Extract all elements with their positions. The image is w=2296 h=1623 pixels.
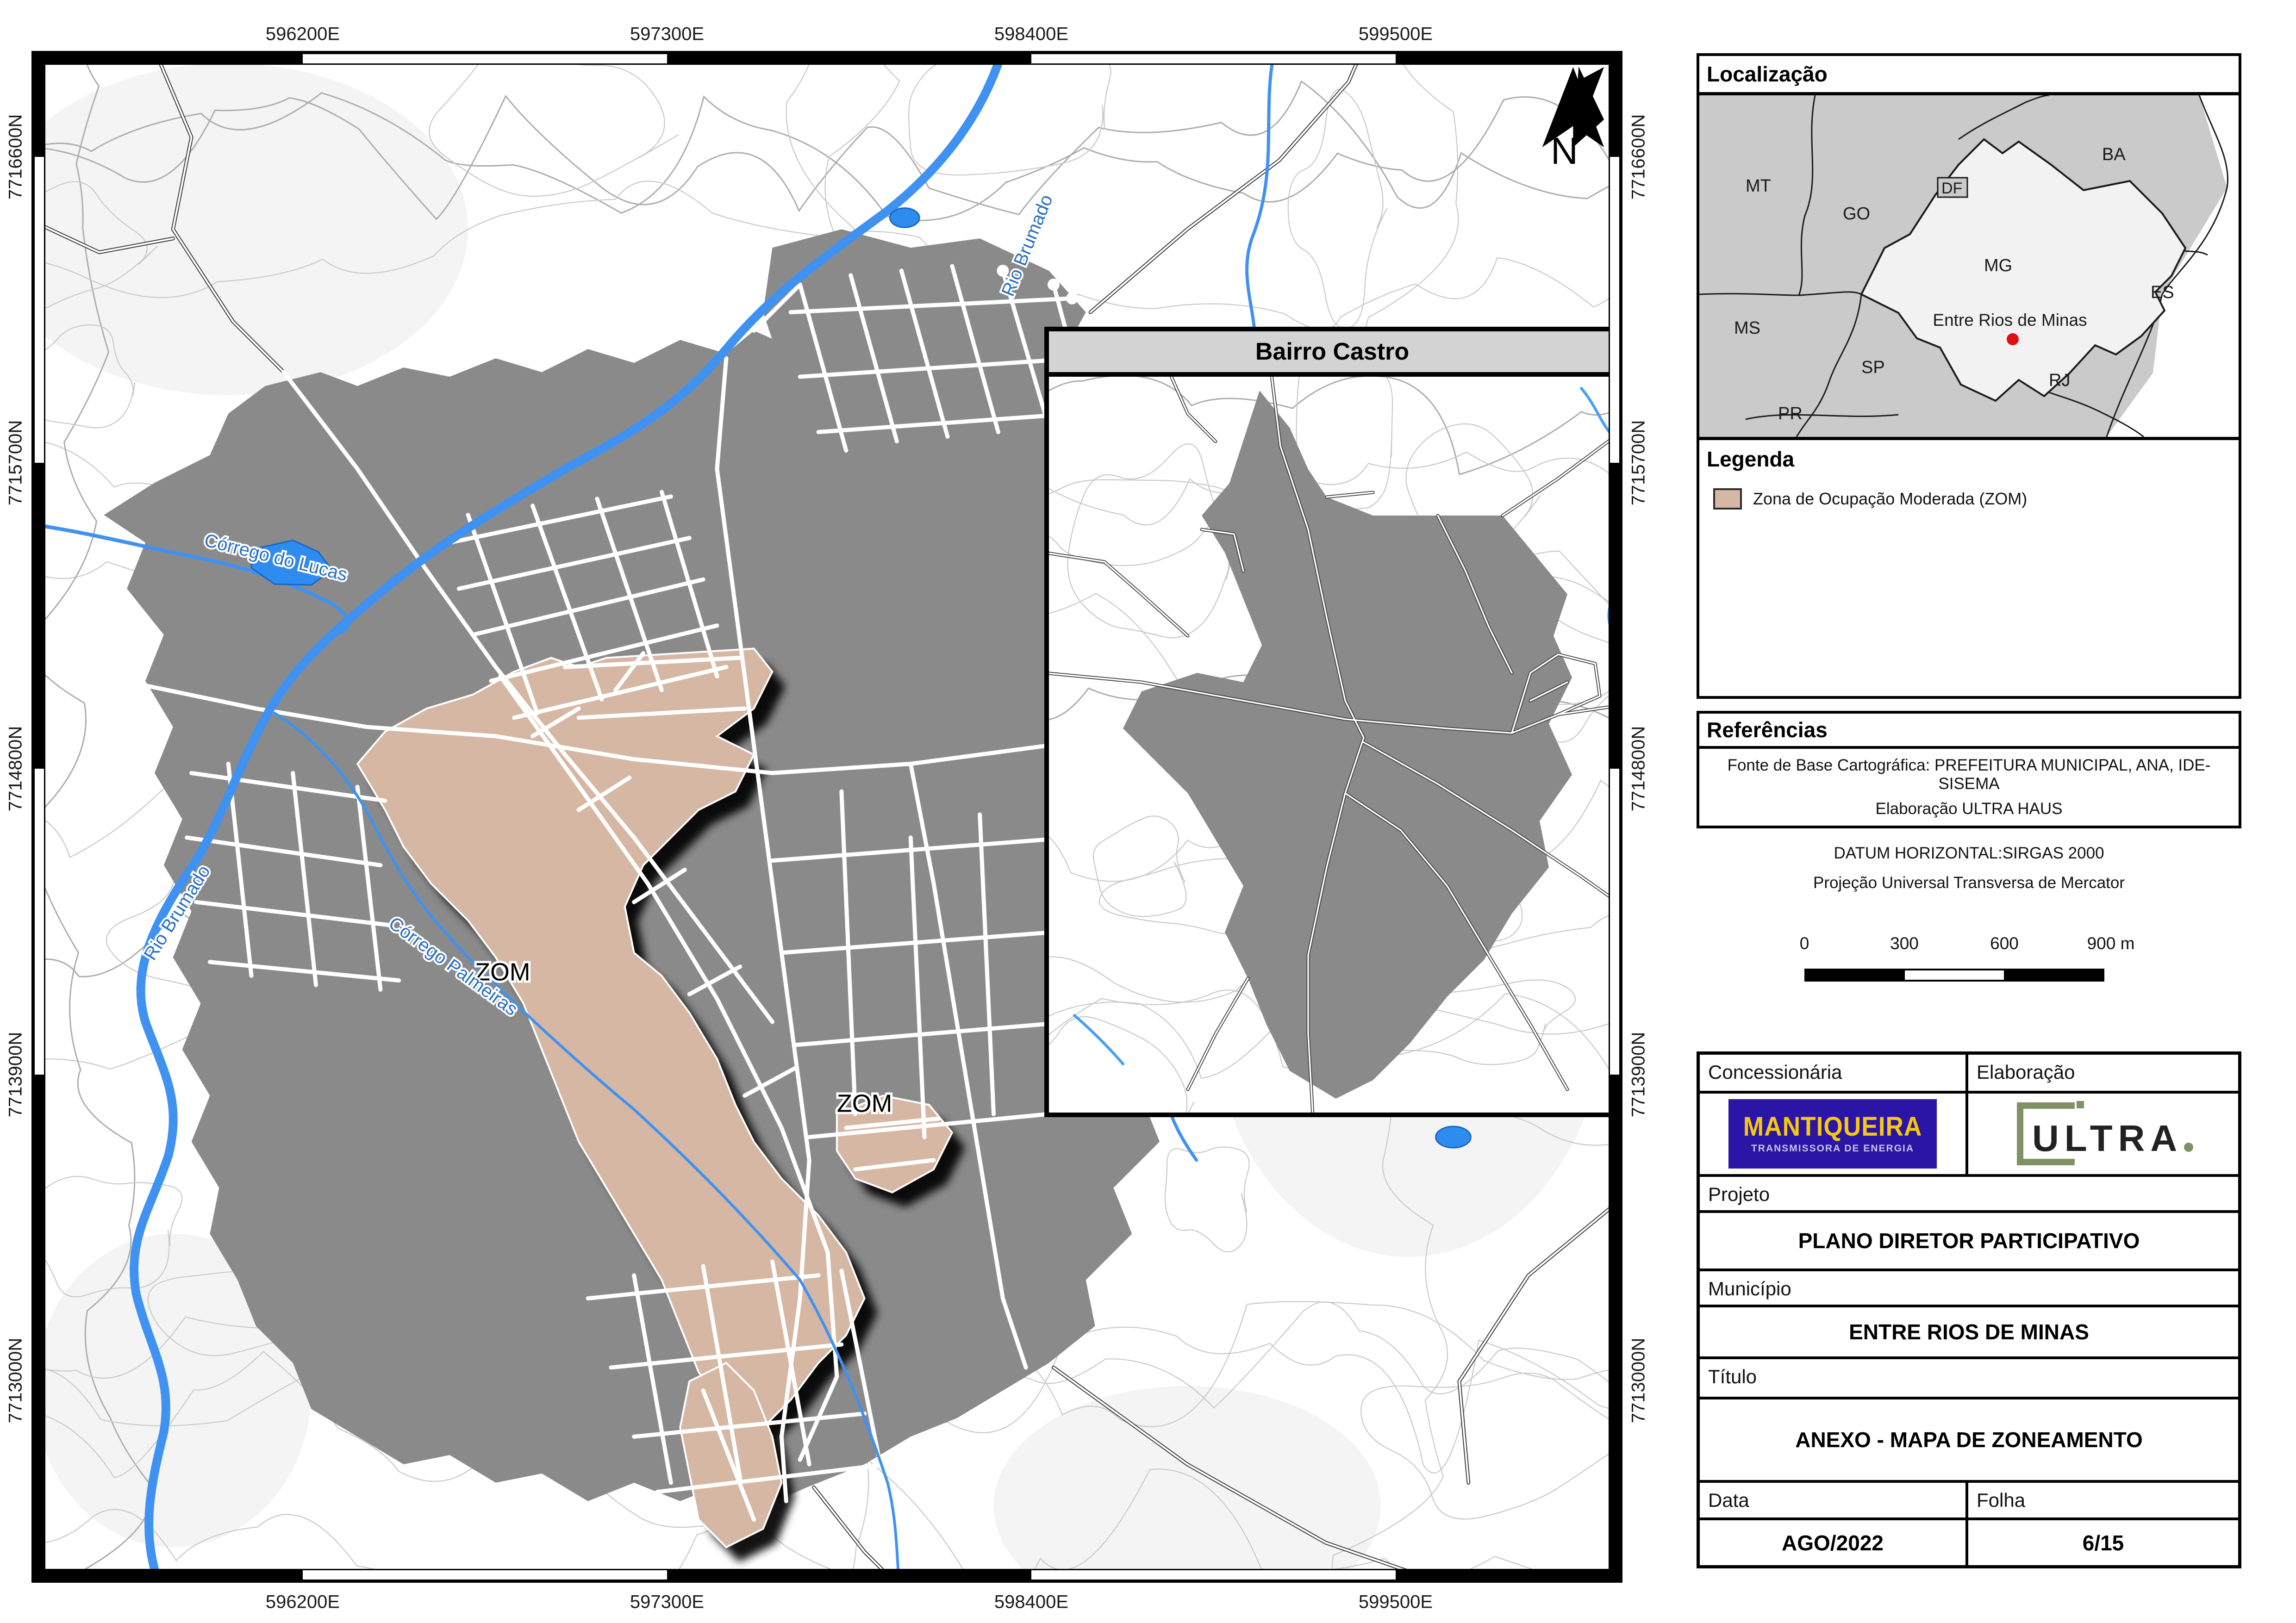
state-locator-map: MT GO DF BA MG ES MS SP PR RJ Entre Rios…: [1699, 95, 2239, 437]
inset-map-bairro-castro: Bairro Castro: [1044, 327, 1620, 1117]
neatline-left: [35, 54, 45, 1579]
grid-label-right-1: 7716600N: [1628, 114, 1649, 200]
grid-label-left-5: 7713000N: [6, 1338, 26, 1424]
grid-label-bottom-1: 596200E: [266, 1592, 340, 1613]
ultra-logo-dot: [2184, 1143, 2193, 1152]
grid-label-top-1: 596200E: [266, 24, 340, 45]
neatline-bottom: [35, 1569, 1619, 1579]
grid-label-left-4: 7713900N: [6, 1032, 26, 1118]
neatline-top: [35, 54, 1619, 65]
references-body: Fonte de Base Cartográfica: PREFEITURA M…: [1699, 749, 2239, 826]
scale-bar-segment-3: [2004, 970, 2103, 980]
elaboracao-label: Elaboração: [1968, 1055, 2238, 1083]
scalebar-tick-600: 600: [1990, 934, 2019, 953]
row-titulo-label: Título: [1700, 1356, 2238, 1397]
grid-label-top-3: 598400E: [994, 24, 1068, 45]
localizacao-panel: Localização MT GO DF BA MG ES MS SP PR R…: [1697, 53, 2241, 437]
municipality-marker: [2007, 333, 2019, 345]
folha-value: 6/15: [1968, 1520, 2238, 1565]
grid-label-bottom-3: 598400E: [994, 1592, 1068, 1613]
data-label: Data: [1700, 1483, 1965, 1511]
zom-swatch: [1713, 488, 1742, 510]
row-municipio-value: ENTRE RIOS DE MINAS: [1700, 1305, 2238, 1356]
scale-bar-segment-1: [1806, 970, 1905, 980]
references-title: Referências: [1699, 717, 1828, 742]
legend-item-zom: Zona de Ocupação Moderada (ZOM): [1713, 488, 2239, 510]
grid-label-bottom-2: 597300E: [630, 1592, 704, 1613]
grid-label-bottom-4: 599500E: [1359, 1592, 1433, 1613]
state-label-sp: SP: [1861, 358, 1885, 377]
mantiqueira-logo-text: MANTIQUEIRA: [1743, 1113, 1922, 1140]
concessionaria-label: Concessionária: [1700, 1055, 1965, 1083]
folha-label: Folha: [1968, 1483, 2238, 1511]
state-label-es: ES: [2151, 283, 2174, 302]
ultra-logo: ULTRA: [2006, 1099, 2201, 1169]
grid-label-right-5: 7713000N: [1628, 1338, 1649, 1424]
projeto-label: Projeto: [1700, 1177, 2238, 1206]
scalebar-tick-0: 0: [1800, 934, 1809, 953]
row-municipio-label: Município: [1700, 1269, 2238, 1305]
mantiqueira-logo: MANTIQUEIRA TRANSMISSORA DE ENERGIA: [1728, 1099, 1937, 1169]
row-concessionaria-elaboracao: Concessionária Elaboração: [1700, 1055, 2238, 1091]
zoning-map-sheet: { "map": { "grid_e": ["596200E", "597300…: [0, 0, 2296, 1623]
mantiqueira-logo-subtext: TRANSMISSORA DE ENERGIA: [1751, 1143, 1914, 1154]
inset-title-bar: Bairro Castro: [1049, 331, 1616, 377]
marker-label: Entre Rios de Minas: [1933, 311, 2087, 330]
localizacao-header: Localização: [1699, 56, 2239, 95]
scale-bar-segment-2: [1905, 970, 2003, 980]
neatline-right: [1609, 54, 1619, 1579]
inset-canvas: [1049, 377, 1616, 1113]
scale-bar: [1804, 969, 2104, 982]
scalebar-tick-300: 300: [1890, 934, 1919, 953]
zom-swatch-label: Zona de Ocupação Moderada (ZOM): [1753, 489, 2027, 509]
legend-panel: Legenda Zona de Ocupação Moderada (ZOM): [1697, 437, 2241, 699]
row-logos: MANTIQUEIRA TRANSMISSORA DE ENERGIA ULTR…: [1700, 1091, 2238, 1174]
municipio-value: ENTRE RIOS DE MINAS: [1700, 1307, 2238, 1356]
municipio-label: Município: [1700, 1271, 2238, 1300]
state-label-ms: MS: [1734, 318, 1760, 338]
legend-title: Legenda: [1699, 440, 2239, 476]
projeto-value: PLANO DIRETOR PARTICIPATIVO: [1700, 1213, 2238, 1269]
grid-label-left-1: 7716600N: [6, 114, 26, 200]
state-label-mg: MG: [1984, 256, 2012, 275]
titulo-value: ANEXO - MAPA DE ZONEAMENTO: [1700, 1399, 2238, 1480]
title-block: Concessionária Elaboração MANTIQUEIRA TR…: [1697, 1051, 2241, 1568]
row-data-folha-labels: Data Folha: [1700, 1480, 2238, 1517]
grid-label-right-2: 7715700N: [1628, 420, 1649, 506]
inset-title-text: Bairro Castro: [1255, 338, 1409, 366]
ultra-logo-text: ULTRA: [2032, 1118, 2183, 1159]
state-label-go: GO: [1843, 204, 1870, 224]
row-projeto-label: Projeto: [1700, 1174, 2238, 1210]
references-header: Referências: [1699, 714, 2239, 749]
scalebar-tick-900: 900 m: [2087, 934, 2135, 953]
localizacao-title: Localização: [1699, 62, 1828, 87]
zom-label-2: ZOM: [837, 1089, 892, 1117]
datum-line-2: Projeção Universal Transversa de Mercato…: [1697, 874, 2241, 892]
state-label-pr: PR: [1778, 404, 1803, 423]
references-source: Fonte de Base Cartográfica: PREFEITURA M…: [1699, 756, 2239, 793]
north-arrow-label: N: [1551, 130, 1578, 172]
data-value: AGO/2022: [1700, 1520, 1965, 1565]
grid-label-left-3: 7714800N: [6, 726, 26, 812]
grid-label-left-2: 7715700N: [6, 420, 26, 506]
titulo-label: Título: [1700, 1359, 2238, 1388]
row-titulo-value: ANEXO - MAPA DE ZONEAMENTO: [1700, 1397, 2238, 1480]
state-label-rj: RJ: [2049, 371, 2070, 390]
grid-label-top-4: 599500E: [1359, 24, 1433, 45]
state-label-df: DF: [1941, 180, 1962, 197]
row-projeto-value: PLANO DIRETOR PARTICIPATIVO: [1700, 1210, 2238, 1269]
grid-label-top-2: 597300E: [630, 24, 704, 45]
references-elaboration: Elaboração ULTRA HAUS: [1699, 800, 2239, 818]
datum-line-1: DATUM HORIZONTAL:SIRGAS 2000: [1697, 844, 2241, 863]
references-panel: Referências Fonte de Base Cartográfica: …: [1697, 711, 2241, 828]
ultra-logo-accent-square: [2077, 1101, 2084, 1108]
grid-label-right-3: 7714800N: [1628, 726, 1649, 812]
state-label-mt: MT: [1746, 176, 1771, 196]
state-label-ba: BA: [2102, 145, 2126, 164]
grid-label-right-4: 7713900N: [1628, 1032, 1649, 1118]
row-data-folha-values: AGO/2022 6/15: [1700, 1517, 2238, 1565]
